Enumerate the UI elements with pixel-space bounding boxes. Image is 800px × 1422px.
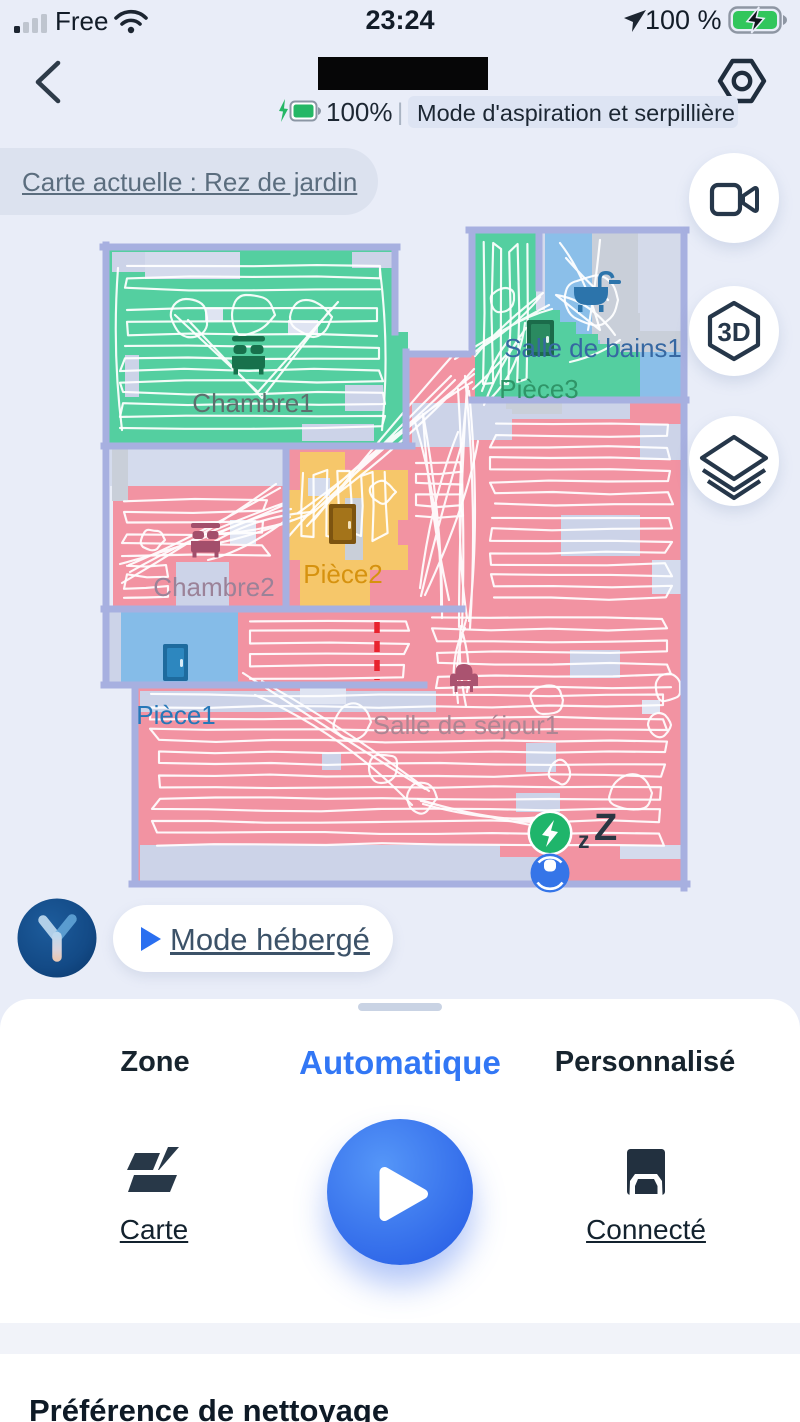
svg-text:Pièce1: Pièce1 xyxy=(136,700,216,730)
svg-text:Pièce3: Pièce3 xyxy=(499,374,579,404)
svg-text:Chambre2: Chambre2 xyxy=(153,572,274,602)
svg-text:Salle de bains1: Salle de bains1 xyxy=(504,333,682,363)
svg-text:Chambre1: Chambre1 xyxy=(192,388,313,418)
svg-text:Pièce2: Pièce2 xyxy=(303,559,383,589)
svg-text:Salle de séjour1: Salle de séjour1 xyxy=(373,710,559,740)
svg-text:Z: Z xyxy=(594,807,617,849)
svg-text:3D: 3D xyxy=(717,317,750,347)
svg-text:z: z xyxy=(578,827,590,853)
